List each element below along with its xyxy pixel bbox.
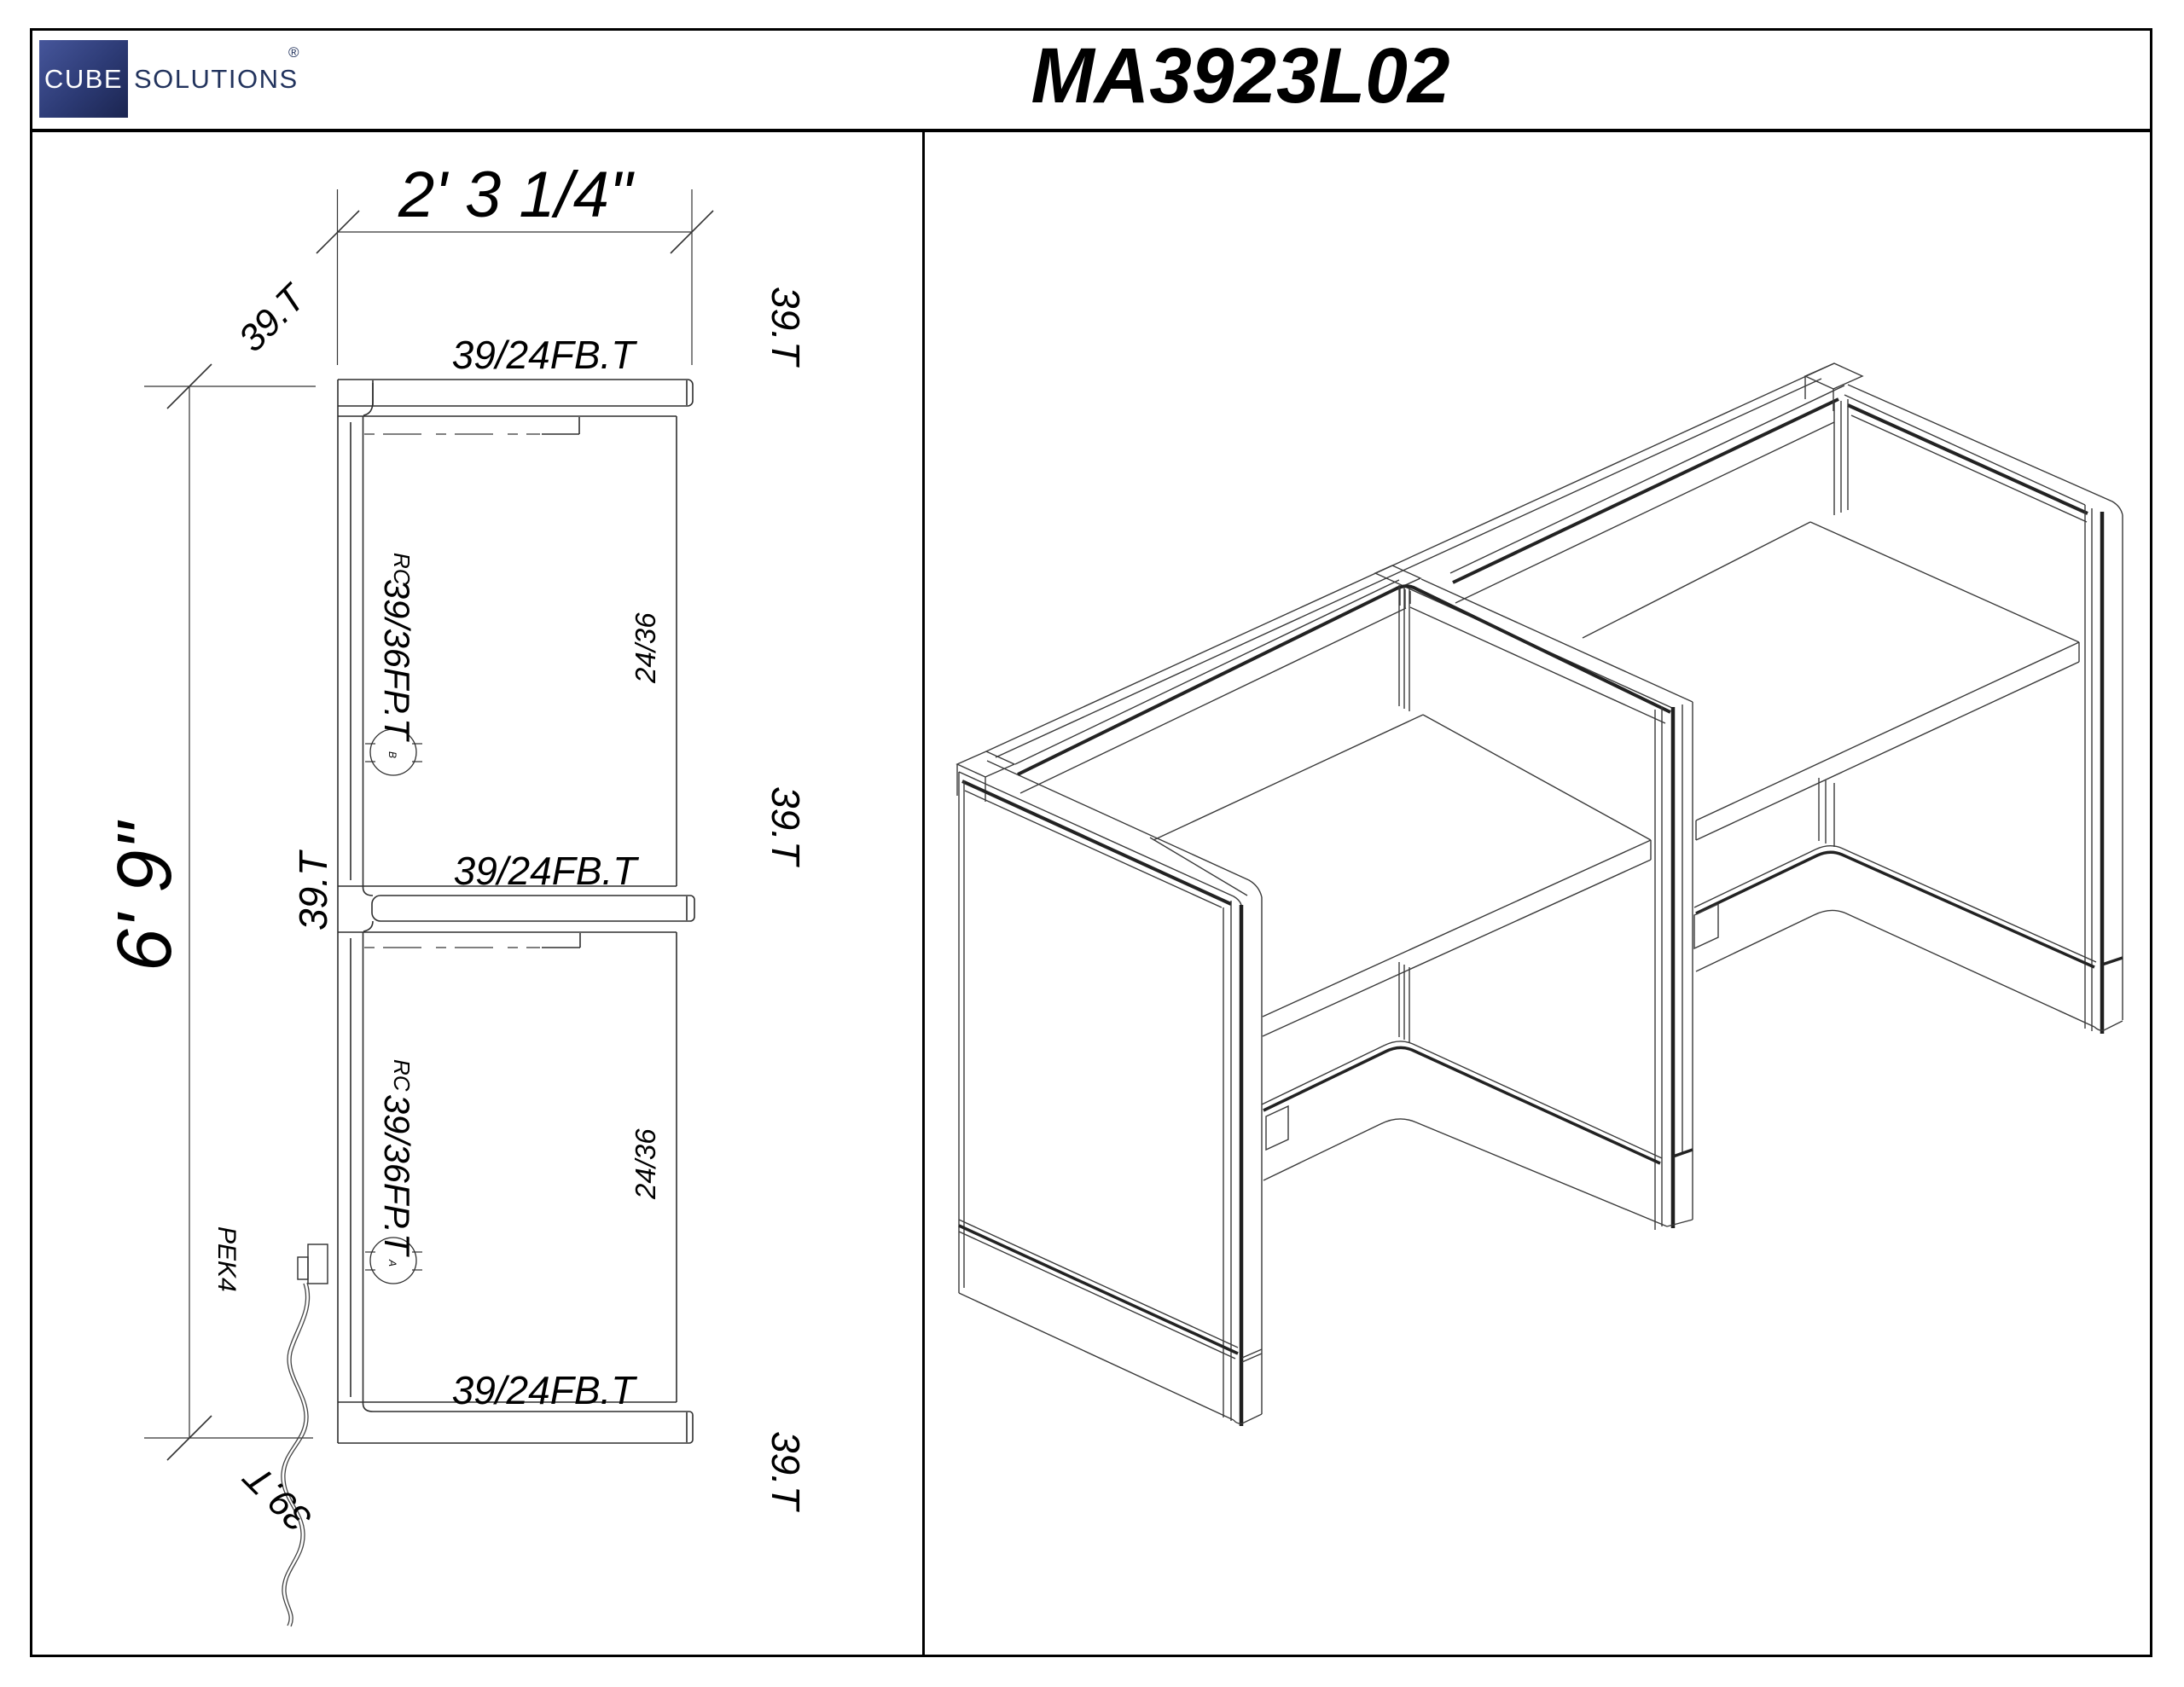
svg-text:B: B	[386, 751, 398, 758]
svg-text:39.T: 39.T	[764, 287, 808, 368]
svg-text:39/24FB.T: 39/24FB.T	[454, 849, 640, 893]
svg-text:39.T: 39.T	[235, 1455, 320, 1539]
svg-text:2' 3 1/4": 2' 3 1/4"	[398, 159, 635, 231]
svg-text:39.T: 39.T	[230, 275, 315, 360]
svg-text:39/24FB.T: 39/24FB.T	[452, 1368, 638, 1412]
svg-text:A: A	[386, 1259, 398, 1267]
svg-text:39/36FP.T: 39/36FP.T	[377, 1094, 417, 1257]
svg-text:RC: RC	[389, 553, 415, 585]
svg-text:6' 9": 6' 9"	[102, 820, 188, 971]
svg-text:39/36FP.T: 39/36FP.T	[377, 579, 417, 742]
svg-text:24/36: 24/36	[630, 1128, 661, 1200]
svg-text:39/24FB.T: 39/24FB.T	[452, 333, 638, 377]
svg-text:39.T: 39.T	[291, 849, 335, 930]
svg-text:PEK4: PEK4	[212, 1226, 241, 1292]
svg-text:24/36: 24/36	[630, 612, 661, 684]
svg-text:39.T: 39.T	[764, 786, 808, 867]
svg-text:RC: RC	[389, 1059, 415, 1092]
svg-text:39.T: 39.T	[764, 1431, 808, 1512]
